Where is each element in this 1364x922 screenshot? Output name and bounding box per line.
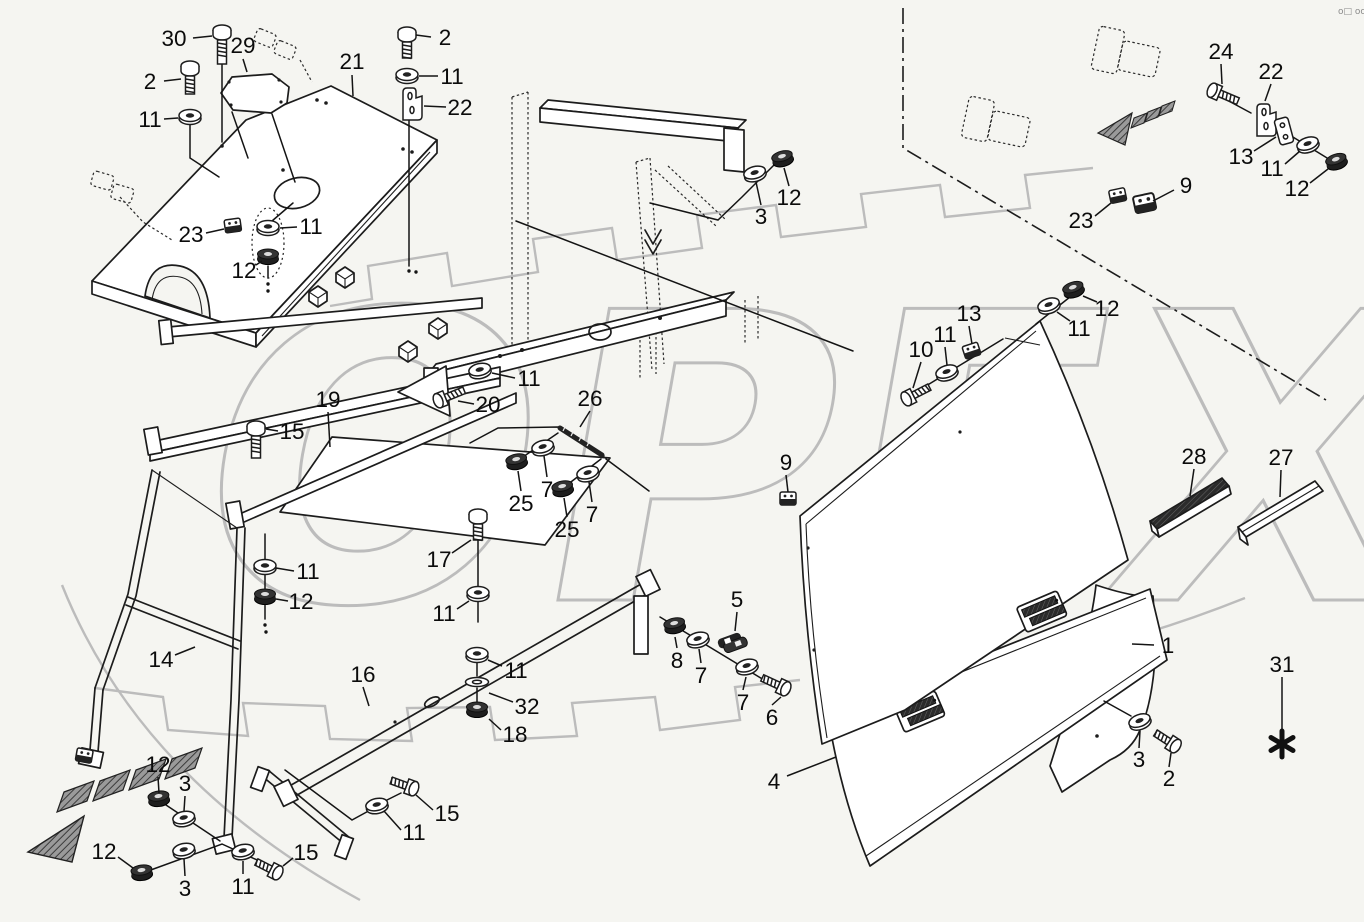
clip-icon: [75, 748, 93, 764]
washer-icon: [254, 560, 276, 575]
callout-leader: [787, 757, 836, 776]
part-number-label: 3: [1133, 747, 1146, 772]
part-number-label: 11: [231, 874, 254, 899]
part-number-label: 9: [780, 450, 793, 475]
callout-leader: [1169, 753, 1171, 767]
callout-leader: [283, 858, 293, 866]
callout-leader: [424, 106, 446, 107]
part-number-label: 12: [1094, 296, 1119, 321]
bracket-icon: [403, 88, 422, 120]
washer-icon: [396, 69, 418, 84]
part-number-label: 7: [695, 663, 708, 688]
bolt-icon: [1151, 726, 1183, 754]
part-number-label: 5: [731, 587, 744, 612]
part-number-label: 9: [1180, 173, 1193, 198]
nut-icon: [255, 589, 276, 605]
part-number-label: 24: [1208, 39, 1233, 64]
clip-icon: [780, 492, 796, 505]
bolt-icon: [213, 25, 231, 64]
part-number-label: 2: [439, 25, 452, 50]
part-number-label: 6: [766, 705, 779, 730]
nut-icon: [130, 864, 153, 882]
part-number-label: 11: [933, 322, 956, 347]
callout-leader: [164, 79, 181, 81]
part-number-label: 17: [426, 547, 451, 572]
washer-icon: [257, 221, 279, 236]
callout-leader: [184, 796, 185, 811]
callout-leader: [1310, 169, 1328, 183]
part-number-label: 12: [91, 839, 116, 864]
washer-icon: [179, 110, 201, 125]
callout-leader: [756, 182, 761, 205]
part-number-label: 30: [161, 26, 186, 51]
part-number-label: 12: [231, 258, 256, 283]
part-number-label: 16: [350, 662, 375, 687]
part-number-label: 15: [293, 840, 318, 865]
clip-icon: [224, 218, 242, 233]
part-number-label: 15: [434, 801, 459, 826]
part-number-label: 32: [514, 694, 539, 719]
nut-icon: [771, 149, 795, 169]
part-number-label: 27: [1268, 445, 1293, 470]
callout-leader: [416, 35, 431, 37]
part-number-label: 12: [776, 185, 801, 210]
washer-icon: [172, 809, 197, 828]
callout-leader: [1280, 470, 1281, 497]
callout-leader: [184, 859, 185, 876]
part-number-label: 25: [508, 491, 533, 516]
washer-icon: [467, 587, 489, 602]
part-number-label: 7: [737, 690, 750, 715]
callout-leader: [489, 719, 501, 730]
bracket-icon: [1133, 193, 1157, 214]
part-number-label: 8: [671, 648, 684, 673]
part-number-label: 11: [504, 658, 527, 683]
part-number-label: 22: [447, 95, 472, 120]
part-number-label: 3: [179, 876, 192, 901]
part-number-label: 22: [1258, 59, 1283, 84]
bolt-icon: [181, 61, 199, 94]
part-number-label: 10: [908, 337, 933, 362]
part-number-label: 15: [279, 419, 304, 444]
part-number-label: 21: [339, 49, 364, 74]
callout-leader: [1285, 151, 1300, 164]
part-number-label: 12: [1284, 176, 1309, 201]
part-number-label: 12: [288, 589, 313, 614]
clip-icon: [1109, 188, 1127, 204]
callout-leader: [384, 811, 401, 830]
callout-leader: [1153, 190, 1174, 201]
part-number-label: 23: [178, 222, 203, 247]
callout-leader: [784, 168, 789, 186]
part-number-label: 26: [577, 386, 602, 411]
part-number-label: 18: [502, 722, 527, 747]
part-number-label: 3: [755, 204, 768, 229]
part-number-label: 11: [299, 214, 322, 239]
part-number-label: 12: [145, 752, 170, 777]
part-number-label: 13: [956, 301, 981, 326]
bracket-icon: [1257, 104, 1276, 136]
part-number-label: 14: [148, 647, 173, 672]
part-number-label: 2: [144, 69, 157, 94]
part-number-label: 28: [1181, 444, 1206, 469]
part-number-label: 11: [432, 601, 455, 626]
nut-icon: [467, 702, 488, 718]
corner-mark: o□ ooo: [1338, 7, 1364, 17]
part-number-label: 11: [1260, 156, 1283, 181]
callout-leader: [416, 795, 433, 810]
callout-leader: [243, 59, 247, 72]
part-number-label: 13: [1228, 144, 1253, 169]
callout-leader: [1132, 644, 1154, 645]
bolt-icon: [398, 27, 416, 59]
bolt-icon: [1205, 82, 1241, 109]
part-number-label: 11: [138, 107, 161, 132]
part-number-label: 7: [586, 502, 599, 527]
callout-leader: [164, 118, 178, 119]
direction-arrow-icon: [1098, 101, 1175, 145]
part-number-label: 2: [1163, 766, 1176, 791]
washer-icon: [742, 164, 767, 184]
part-number-label: 29: [230, 33, 255, 58]
part-number-label: 19: [315, 387, 340, 412]
callout-leader: [158, 777, 159, 793]
callout-leader: [352, 75, 353, 96]
callout-leader: [772, 697, 781, 705]
callout-leader: [193, 36, 212, 38]
callout-leader: [1254, 137, 1276, 151]
washer-icon: [466, 678, 489, 687]
callout-leader: [280, 227, 297, 228]
part-number-label: 7: [541, 477, 554, 502]
part-number-label: 1: [1162, 633, 1175, 658]
bracket-icon: [1274, 117, 1294, 146]
part-number-label: 4: [768, 769, 781, 794]
callout-leader: [1095, 203, 1111, 216]
part-number-label: 31: [1269, 652, 1294, 677]
part-number-label: 11: [440, 64, 463, 89]
callout-leader: [1221, 64, 1222, 84]
part-number-label: 11: [296, 559, 319, 584]
part-number-label: 11: [517, 366, 540, 391]
part-number-label: 25: [554, 517, 579, 542]
parts-diagram: OPEX: [0, 0, 1364, 922]
part-number-label: 11: [402, 820, 425, 845]
part-number-label: 20: [475, 392, 500, 417]
bolt-icon: [388, 773, 420, 797]
callout-leader: [118, 857, 133, 868]
washer-icon: [466, 648, 488, 663]
callout-leader: [1139, 731, 1140, 748]
footnote-asterisk: [1271, 731, 1293, 757]
part-number-label: 3: [179, 771, 192, 796]
callout-leader: [1265, 84, 1271, 101]
bolt-icon: [253, 855, 286, 882]
part-number-label: 23: [1068, 208, 1093, 233]
part-number-label: 11: [1067, 316, 1090, 341]
washer-icon: [172, 841, 197, 860]
